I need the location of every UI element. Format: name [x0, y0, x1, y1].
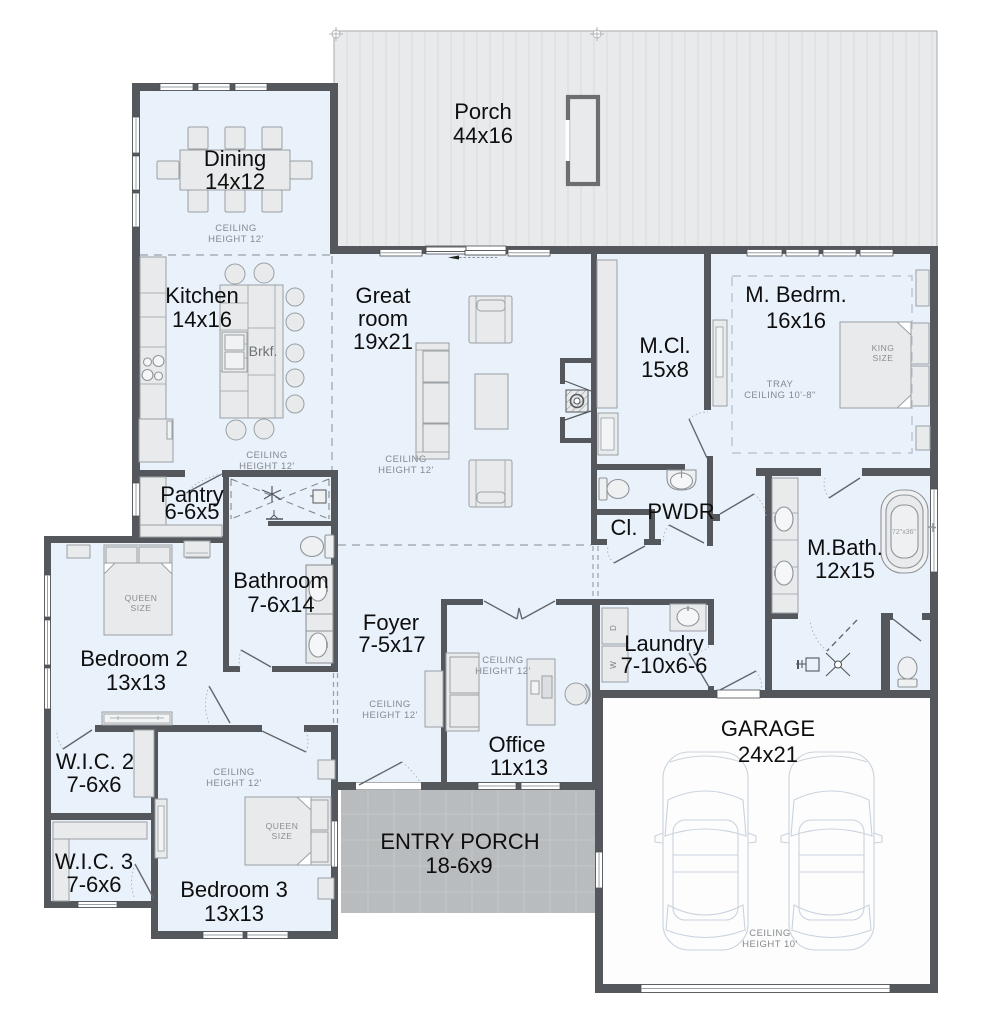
svg-text:M. Bedrm.: M. Bedrm. [745, 282, 846, 307]
svg-text:Kitchen: Kitchen [165, 283, 238, 308]
svg-text:GARAGE: GARAGE [721, 716, 815, 741]
svg-text:7-6x14: 7-6x14 [247, 592, 314, 617]
svg-text:Great: Great [355, 283, 410, 308]
svg-text:24x21: 24x21 [738, 742, 798, 767]
svg-text:ENTRY PORCH: ENTRY PORCH [380, 829, 539, 854]
svg-text:18-6x9: 18-6x9 [425, 853, 492, 878]
svg-text:44x16: 44x16 [453, 123, 513, 148]
svg-text:HEIGHT 12': HEIGHT 12' [362, 710, 418, 721]
svg-text:M.Cl.: M.Cl. [639, 333, 690, 358]
svg-text:12x15: 12x15 [815, 558, 875, 583]
svg-text:CEILING: CEILING [482, 655, 524, 666]
svg-text:Bedroom 2: Bedroom 2 [80, 646, 188, 671]
svg-text:SIZE: SIZE [272, 831, 293, 841]
svg-text:7-10x6-6: 7-10x6-6 [621, 653, 708, 678]
svg-text:CEILING: CEILING [749, 928, 791, 939]
svg-text:15x8: 15x8 [641, 357, 689, 382]
svg-text:HEIGHT 12': HEIGHT 12' [475, 666, 531, 677]
svg-text:HEIGHT 12': HEIGHT 12' [206, 778, 262, 789]
svg-text:PWDR: PWDR [647, 499, 714, 524]
svg-text:W.I.C. 3: W.I.C. 3 [55, 849, 133, 874]
svg-text:CEILING: CEILING [215, 223, 257, 234]
svg-text:13x13: 13x13 [204, 901, 264, 926]
svg-text:HEIGHT 12': HEIGHT 12' [239, 461, 295, 472]
svg-text:HEIGHT 12': HEIGHT 12' [208, 234, 264, 245]
svg-text:14x12: 14x12 [205, 169, 265, 194]
svg-text:QUEEN: QUEEN [266, 821, 299, 831]
svg-text:KING: KING [872, 343, 895, 353]
svg-text:Bedroom 3: Bedroom 3 [180, 877, 288, 902]
svg-text:CEILING: CEILING [385, 454, 427, 465]
svg-text:13x13: 13x13 [106, 670, 166, 695]
svg-text:7-6x6: 7-6x6 [66, 872, 121, 897]
svg-text:M.Bath.: M.Bath. [807, 535, 883, 560]
svg-text:Bathroom: Bathroom [233, 568, 328, 593]
svg-text:CEILING: CEILING [369, 699, 411, 710]
svg-text:Office: Office [488, 732, 545, 757]
svg-text:HEIGHT 10': HEIGHT 10' [742, 939, 798, 950]
svg-text:W: W [609, 661, 618, 669]
svg-text:QUEEN: QUEEN [125, 593, 158, 603]
svg-text:7-6x6: 7-6x6 [66, 772, 121, 797]
svg-text:6-6x5: 6-6x5 [164, 499, 219, 524]
svg-text:16x16: 16x16 [766, 308, 826, 333]
svg-text:room: room [358, 306, 408, 331]
svg-text:7-5x17: 7-5x17 [358, 632, 425, 657]
svg-text:19x21: 19x21 [353, 329, 413, 354]
svg-text:Cl.: Cl. [611, 515, 638, 540]
svg-text:TRAY: TRAY [767, 379, 794, 390]
svg-text:Porch: Porch [454, 99, 511, 124]
svg-text:11x13: 11x13 [490, 755, 548, 780]
svg-text:Brkf.: Brkf. [249, 343, 278, 359]
svg-text:14x16: 14x16 [172, 307, 232, 332]
svg-text:CEILING 10'-8": CEILING 10'-8" [744, 390, 816, 401]
svg-text:SIZE: SIZE [131, 603, 152, 613]
svg-text:72"x36": 72"x36" [892, 529, 917, 536]
svg-text:SIZE: SIZE [873, 353, 894, 363]
svg-text:D: D [609, 625, 618, 631]
svg-text:Dining: Dining [204, 146, 266, 171]
svg-text:W.I.C. 2: W.I.C. 2 [56, 749, 134, 774]
svg-text:HEIGHT 12': HEIGHT 12' [378, 465, 434, 476]
svg-text:CEILING: CEILING [213, 767, 255, 778]
svg-text:CEILING: CEILING [246, 450, 288, 461]
